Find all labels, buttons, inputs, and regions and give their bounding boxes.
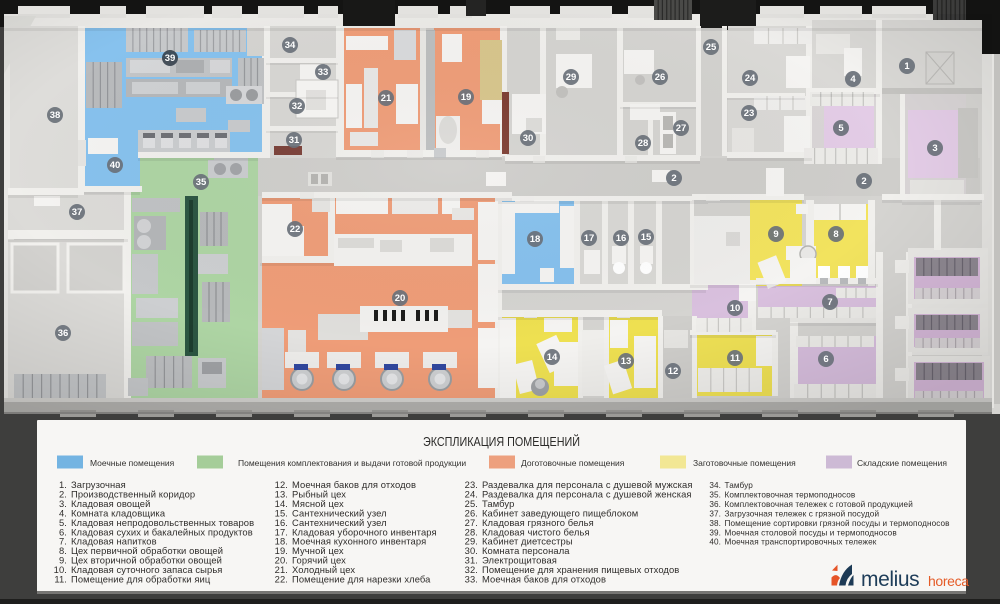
- svg-text:Моечная транспортировочных тел: Моечная транспортировочных тележек: [725, 538, 877, 547]
- svg-text:Моечная баков для отходов: Моечная баков для отходов: [482, 574, 606, 585]
- svg-text:Заготовочные помещения: Заготовочные помещения: [693, 458, 796, 468]
- svg-text:30: 30: [523, 133, 534, 144]
- svg-text:24: 24: [745, 73, 756, 84]
- svg-text:31: 31: [289, 135, 300, 146]
- svg-text:melius: melius: [861, 568, 919, 591]
- svg-text:Помещение для обработки яиц: Помещение для обработки яиц: [71, 574, 211, 585]
- svg-text:26: 26: [655, 72, 666, 83]
- svg-text:38.: 38.: [709, 519, 721, 528]
- svg-text:17: 17: [584, 233, 595, 244]
- svg-text:39: 39: [165, 53, 176, 64]
- svg-text:Помещения комплектования и выд: Помещения комплектования и выдачи готово…: [238, 458, 466, 468]
- svg-text:19: 19: [461, 92, 472, 103]
- svg-text:Тамбур: Тамбур: [725, 481, 754, 490]
- svg-text:12: 12: [668, 366, 679, 377]
- svg-text:38: 38: [50, 110, 61, 121]
- svg-text:2: 2: [861, 176, 866, 187]
- svg-text:7: 7: [827, 297, 832, 308]
- svg-text:6: 6: [823, 354, 828, 365]
- svg-text:21: 21: [381, 93, 392, 104]
- svg-text:22: 22: [290, 224, 301, 235]
- svg-text:5: 5: [838, 123, 844, 134]
- svg-text:Складские помещения: Складские помещения: [857, 458, 947, 468]
- svg-text:Загрузочная тележек с грязной: Загрузочная тележек с грязной посудой: [725, 509, 880, 518]
- svg-text:28: 28: [638, 138, 649, 149]
- svg-text:Комплектовочная термоподносов: Комплектовочная термоподносов: [725, 490, 856, 499]
- svg-text:8: 8: [833, 229, 838, 240]
- svg-text:37: 37: [72, 207, 83, 218]
- svg-text:40: 40: [110, 160, 121, 171]
- svg-text:18: 18: [530, 234, 541, 245]
- svg-text:11.: 11.: [54, 574, 67, 585]
- svg-text:13: 13: [621, 356, 632, 367]
- svg-text:11: 11: [730, 353, 741, 364]
- svg-text:Помещение для нарезки хлеба: Помещение для нарезки хлеба: [292, 574, 431, 585]
- svg-text:36.: 36.: [709, 500, 721, 509]
- svg-text:Помещение сортировки грязной п: Помещение сортировки грязной посуды и те…: [725, 519, 950, 528]
- svg-text:22.: 22.: [275, 574, 288, 585]
- svg-text:16: 16: [616, 233, 627, 244]
- svg-text:14: 14: [547, 352, 558, 363]
- svg-text:Моечная столовой посуды и терм: Моечная столовой посуды и термоподносов: [725, 528, 897, 537]
- svg-text:1: 1: [904, 61, 910, 72]
- svg-text:20: 20: [395, 293, 406, 304]
- svg-text:34.: 34.: [709, 481, 721, 490]
- svg-text:29: 29: [566, 72, 577, 83]
- svg-text:37.: 37.: [709, 509, 721, 518]
- svg-text:40.: 40.: [709, 538, 721, 547]
- svg-text:9: 9: [773, 229, 778, 240]
- svg-text:10: 10: [730, 303, 741, 314]
- svg-text:Комплектовочная тележек с гото: Комплектовочная тележек с готовой продук…: [725, 500, 913, 509]
- svg-text:4: 4: [850, 74, 856, 85]
- svg-text:horeca: horeca: [928, 573, 969, 589]
- svg-text:15: 15: [641, 232, 652, 243]
- svg-text:25: 25: [706, 42, 717, 53]
- svg-text:27: 27: [676, 123, 687, 134]
- svg-text:3: 3: [932, 143, 937, 154]
- svg-text:36: 36: [58, 328, 69, 339]
- svg-text:35: 35: [196, 177, 207, 188]
- svg-text:33.: 33.: [465, 574, 478, 585]
- svg-text:23: 23: [744, 108, 755, 119]
- svg-text:35.: 35.: [709, 490, 721, 499]
- svg-text:Доготовочные помещения: Доготовочные помещения: [521, 458, 625, 468]
- svg-text:39.: 39.: [709, 528, 721, 537]
- svg-text:2: 2: [671, 173, 676, 184]
- svg-text:34: 34: [285, 40, 296, 51]
- svg-text:ЭКСПЛИКАЦИЯ ПОМЕЩЕНИЙ: ЭКСПЛИКАЦИЯ ПОМЕЩЕНИЙ: [423, 434, 580, 449]
- svg-text:32: 32: [292, 101, 303, 112]
- svg-text:Моечные помещения: Моечные помещения: [90, 458, 175, 468]
- svg-text:33: 33: [318, 67, 329, 78]
